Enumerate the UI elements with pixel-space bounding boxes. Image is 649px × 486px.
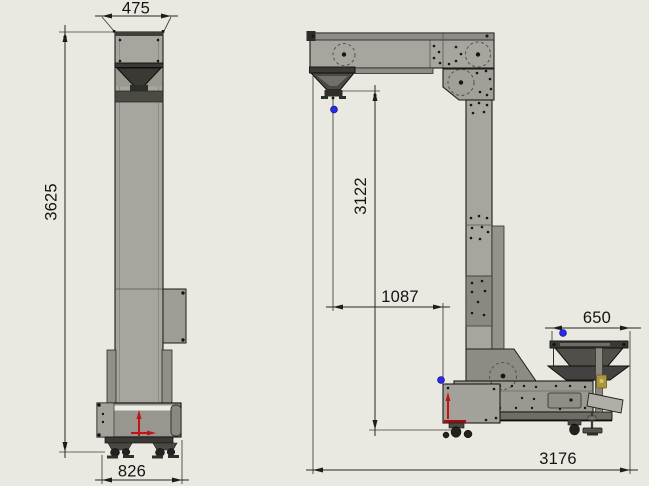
- front-foot-rail: [105, 437, 173, 443]
- dim-label-top-width: 475: [122, 0, 150, 18]
- front-left-rail: [107, 350, 116, 403]
- dim-label-overall-height: 3625: [43, 183, 61, 221]
- dim-label-base-width: 826: [118, 463, 146, 481]
- side-column-access-panel: [466, 276, 492, 326]
- reference-point-marker-hopper: [560, 330, 567, 337]
- side-column: [466, 100, 492, 388]
- reference-point-marker-discharge: [331, 106, 338, 113]
- dim-label-infeed-hopper-width: 650: [583, 309, 611, 327]
- front-drain-pipe: [171, 405, 181, 436]
- technical-drawing: 475 3625 826: [0, 0, 649, 486]
- side-boom-flange: [355, 68, 433, 74]
- dim-label-discharge-offset: 1087: [381, 288, 419, 306]
- front-dark-band: [115, 91, 163, 102]
- drawing-canvas: 475 3625 826: [0, 0, 649, 486]
- discharge-outlet: [325, 90, 343, 97]
- dim-label-discharge-drop-height: 3122: [352, 177, 370, 215]
- front-hopper-outlet: [130, 85, 148, 91]
- side-top-boom-rail: [310, 33, 494, 40]
- dim-label-overall-length: 3176: [539, 450, 577, 468]
- infeed-box: [443, 384, 500, 423]
- front-base-side-panel: [97, 403, 114, 437]
- front-outlet-protrusion: [163, 289, 186, 343]
- reference-point-marker-infeed: [438, 377, 445, 384]
- front-column-top-cap: [115, 32, 163, 36]
- discharge-hopper-rim: [310, 67, 356, 73]
- conveyor-access-panel: [548, 393, 581, 408]
- front-hopper-rim: [115, 63, 163, 68]
- front-right-rail: [162, 350, 172, 403]
